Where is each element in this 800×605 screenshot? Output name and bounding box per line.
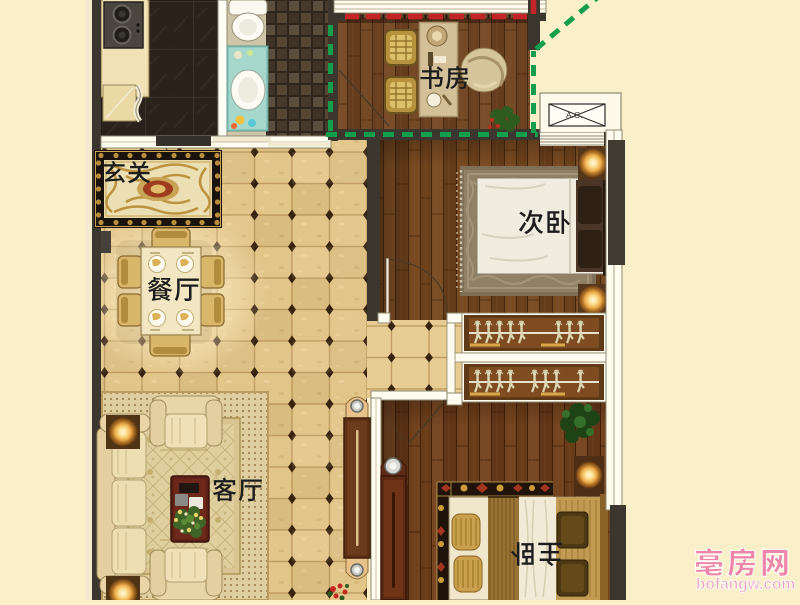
svg-text:bofangw.com: bofangw.com bbox=[696, 576, 795, 593]
svg-text:A.C.: A.C. bbox=[566, 110, 583, 120]
